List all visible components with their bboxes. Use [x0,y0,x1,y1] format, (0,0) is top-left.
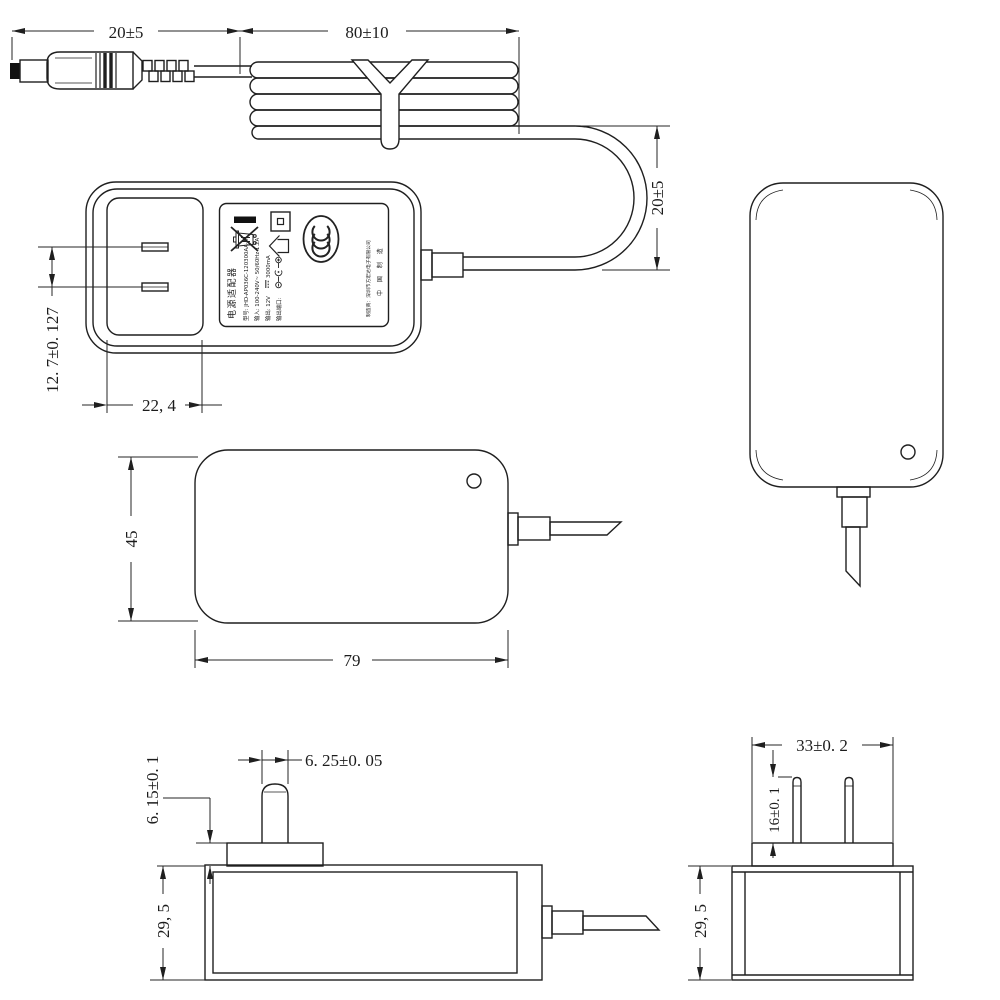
adapter-body-inner [213,872,517,973]
dim-body-depth-left: 29, 5 [154,904,173,938]
cable-bushing [552,911,583,934]
dc-plug [10,52,252,89]
cable-bushing [842,497,867,527]
dim-blade-pitch: 12. 7±0. 127 [43,307,62,393]
side-view-horizontal [195,450,621,623]
cable-tie [352,60,428,149]
plug-ribs [96,53,116,88]
plug-taper [133,52,142,89]
cable-loop-to-adapter [463,126,647,270]
adapter-body [195,450,508,623]
cable-bushing-flange [837,487,870,497]
cable-bushing-flange [508,513,518,545]
plug-strain-relief [143,61,194,82]
dim-blade-length: 16±0. 1 [767,787,783,833]
plug-base [227,843,323,866]
top-view-end [732,778,913,981]
indoor-use-icon [270,236,289,257]
plug-base-platform [107,198,203,335]
dim-plug-base-width: 22, 4 [142,396,177,415]
front-height-dimension: 45 [118,457,198,621]
polarity-icon [275,257,282,288]
black-bar-icon [234,217,256,224]
blade-pitch-dimension: 12. 7±0. 127 [38,247,142,393]
loop-height-dimension: 20±5 [575,126,670,270]
top-view-side [205,784,659,980]
label-manufacturer: 制造商：深圳市方宏达电子有限公司 [365,240,372,317]
body-depth-dimension-left: 29, 5 [150,866,205,980]
screw-hole [467,474,481,488]
dim-coil-length: 80±10 [345,23,388,42]
dc-symbol-icon [266,280,268,288]
adapter-body [205,865,542,980]
cable-bushing [518,517,550,540]
label-title: 电源适配器 [226,266,238,319]
label-output-value: 3000mA [266,255,272,278]
screw-hole [901,445,915,459]
body-depth-dimension-right: 29, 5 [688,866,731,980]
plug-base-width-dimension: 22, 4 [82,340,222,415]
cable-bushing [432,253,463,277]
rating-label: 电源适配器 型号: JHD-AP036C-120300AA-A 输入: 100-… [220,204,389,327]
label-output: 输出: 12V [264,296,272,321]
plug-body [47,52,133,89]
cable-bushing-flange [421,250,432,280]
blade-left [793,778,801,844]
dim-base-width-end: 33±0. 2 [796,736,848,755]
drawing-canvas: 20±5 80±10 [0,0,1000,1000]
ccc-mark-icon [304,216,339,262]
cable-cut-end [583,916,659,930]
front-view [86,182,463,353]
blade-side [262,784,288,843]
label-model: 型号: JHD-AP036C-120300AA-A [242,238,250,321]
cable-cut-end [550,522,621,535]
adapter-technical-drawing: 20±5 80±10 [0,0,1000,1000]
dim-front-height: 45 [122,531,141,548]
dim-blade-width: 6. 25±0. 05 [305,751,382,770]
dim-front-width: 79 [344,651,361,670]
dim-base-height: 6. 15±0. 1 [143,756,162,825]
label-port: 输出端口: [275,297,283,321]
blade-width-dimension: 6. 25±0. 05 [238,750,382,784]
adapter-body [750,183,943,487]
blade-length-dimension: 16±0. 1 [767,750,792,858]
dim-body-depth-right: 29, 5 [691,904,710,938]
plug-blade-top [142,243,168,251]
cable-cut-end [846,527,860,586]
side-view-vertical [750,183,943,586]
cable-bushing-flange [542,906,552,938]
class-ii-icon [271,212,290,231]
plug-blade-bottom [142,283,168,291]
label-made-in: 中 国 制 造 [376,245,384,296]
adapter-body [732,866,913,980]
adapter-inner-shell [93,189,414,346]
plug-tip [10,63,20,79]
front-width-dimension: 79 [195,630,508,670]
dim-plug-length: 20±5 [109,23,144,42]
dim-loop-height: 20±5 [648,181,667,216]
plug-barrel [20,60,48,82]
blade-right [845,778,853,844]
